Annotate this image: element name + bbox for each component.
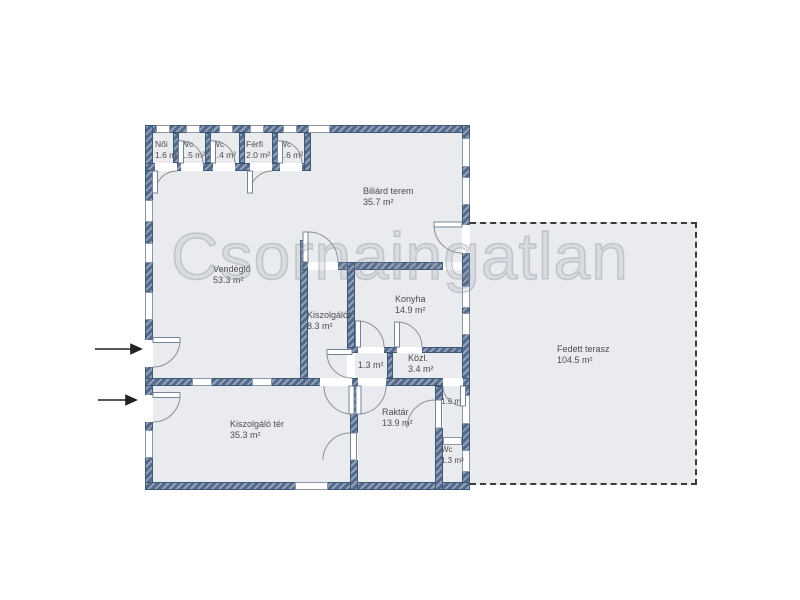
door-opening — [443, 378, 463, 386]
room-name: Közl. — [408, 353, 434, 364]
room-name: Konyha — [395, 294, 426, 305]
door-opening — [250, 163, 272, 171]
room-label-ferfi: Férfi 2.0 m² — [246, 139, 270, 161]
room-area: 1.4 m² — [212, 150, 236, 161]
window — [145, 430, 153, 458]
room-label-konyha: Konyha 14.9 m² — [395, 294, 426, 316]
room-name: Fedett terasz — [557, 344, 610, 355]
window — [192, 378, 212, 386]
door-opening — [280, 163, 302, 171]
room-area: 1.6 m² — [155, 150, 179, 161]
room-label-kiszolgalot: Kiszolgálót 8.3 m² — [307, 310, 351, 332]
door-opening — [347, 353, 355, 378]
wall — [272, 133, 278, 163]
window — [219, 125, 233, 133]
room-area: 2.0 m² — [246, 150, 270, 161]
room-name: Női — [155, 139, 179, 150]
room-area: 1.5 m² — [181, 150, 205, 161]
room-label-1-3: 1.3 m² — [358, 360, 384, 371]
window — [145, 292, 153, 320]
room-name: Kiszolgáló tér — [230, 419, 284, 430]
window — [283, 125, 297, 133]
room-label-kiszolgalo-ter: Kiszolgáló tér 35.3 m² — [230, 419, 284, 441]
room-label-wc3: Wc 1.6 m² — [279, 139, 303, 161]
room-area: 3.4 m² — [408, 364, 434, 375]
room-label-biliard-terem: Biliárd terem 35.7 m² — [363, 186, 414, 208]
room-label-raktar: Raktár 13.9 m² — [382, 407, 413, 429]
door-opening — [350, 433, 358, 460]
door-opening — [213, 163, 235, 171]
room-name: Raktár — [382, 407, 413, 418]
door-opening — [155, 163, 177, 171]
door-opening — [320, 378, 352, 386]
room-name: Wc — [181, 139, 205, 150]
room-label-kozl: Közl. 3.4 m² — [408, 353, 434, 375]
window — [462, 313, 470, 335]
door-opening — [181, 163, 203, 171]
room-area: 35.3 m² — [230, 430, 284, 441]
room-label-vendeglo: Vendéglő 53.3 m² — [213, 264, 251, 286]
room-area: 1.3 m² — [358, 360, 384, 371]
entrance-arrows — [95, 345, 141, 405]
room-area: 1.6 m² — [279, 150, 303, 161]
room-name: Wc — [441, 444, 464, 455]
window — [145, 243, 153, 263]
wall — [387, 353, 393, 378]
room-area: 1.3 m² — [441, 455, 464, 466]
room-area: 1.9 m² — [441, 396, 464, 407]
room-label-1-9: 1.9 m² — [441, 396, 464, 407]
room-name: Wc — [279, 139, 303, 150]
door-opening — [358, 378, 386, 386]
window — [156, 125, 170, 133]
door-opening — [145, 340, 153, 367]
door-opening — [462, 225, 470, 253]
window — [250, 125, 264, 133]
room-area: 13.9 m² — [382, 418, 413, 429]
room-label-fedett-terasz: Fedett terasz 104.5 m² — [557, 344, 610, 366]
window — [462, 138, 470, 167]
window — [186, 125, 200, 133]
room-area: 8.3 m² — [307, 321, 351, 332]
entrance-arrow-icon — [131, 345, 141, 354]
room-area: 14.9 m² — [395, 305, 426, 316]
room-name: Vendéglő — [213, 264, 251, 275]
room-label-noi: Női 1.6 m² — [155, 139, 179, 161]
room-name: Biliárd terem — [363, 186, 414, 197]
room-name: Kiszolgálót — [307, 310, 351, 321]
room-label-wc1: Wc 1.5 m² — [181, 139, 205, 161]
room-name: Wc — [212, 139, 236, 150]
room-area: 104.5 m² — [557, 355, 610, 366]
window — [462, 177, 470, 205]
wall — [239, 133, 245, 163]
room-area: 53.3 m² — [213, 275, 251, 286]
window — [462, 286, 470, 308]
door-opening — [308, 262, 338, 270]
door-opening — [358, 347, 384, 353]
door-opening — [443, 262, 462, 270]
window — [252, 378, 272, 386]
room-label-wc2: Wc 1.4 m² — [212, 139, 236, 161]
room-name: Férfi — [246, 139, 270, 150]
window — [145, 200, 153, 222]
room-label-wc-small: Wc 1.3 m² — [441, 444, 464, 466]
wall — [304, 133, 311, 171]
window — [295, 482, 328, 490]
floor-plan: Női 1.6 m² Wc 1.5 m² Wc 1.4 m² Férfi 2.0… — [0, 0, 800, 600]
window — [308, 125, 330, 133]
room-area: 35.7 m² — [363, 197, 414, 208]
wall — [205, 133, 211, 163]
door-opening — [145, 395, 153, 422]
entrance-arrow-icon — [126, 396, 136, 405]
